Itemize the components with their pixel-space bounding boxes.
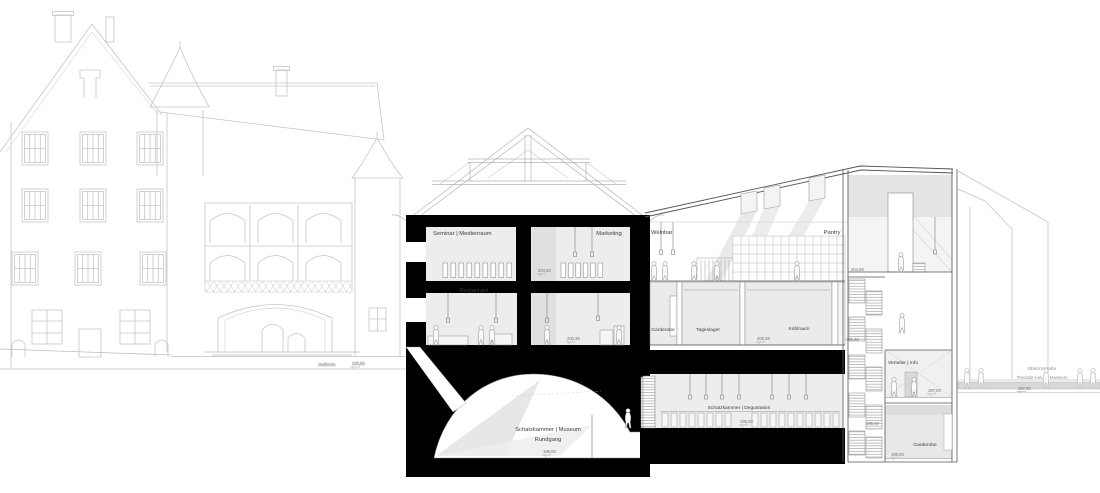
level-basement-garderobe: 195,00 [891,452,904,457]
level-street-verteiler: 197,00 [928,388,941,393]
arched-niches [12,340,168,357]
gf-slab-poche [640,350,845,374]
room-label-seminar: Seminar | Medienraum [433,231,492,237]
room-degustation: Schatzkammer | Degustation 195,00 [643,374,843,428]
room-label-garderobe-eg: Garderobe [651,327,675,333]
wine-rack-grid [733,236,845,281]
gf-rooms [650,282,845,345]
room-label-marketing: Marketing [596,231,621,237]
existing-building-elevation: Gelände 195,50 [0,12,406,370]
street-name-label: Obertorstraße [1028,366,1057,371]
level-terrain: 195,50 [352,361,365,366]
room-label-rundgang: Rundgang [535,437,562,443]
long-roof [148,83,384,140]
level-ground-right: 200,36 [757,336,770,341]
level-upper-middle: 204,50 [538,268,551,273]
stair-flights [849,279,882,458]
lattice-balustrade [205,281,352,292]
level-upper-tower: 204,50 [851,267,864,272]
room-label-verteiler: Verteiler | Info [888,360,918,366]
street-building-label: Theodor-Heuss-Museum [1017,375,1068,380]
level-basement-degustation: 195,00 [740,419,753,424]
shuttered-window [32,310,62,344]
room-label-garderobe-ug: Garderobe [913,442,937,448]
architectural-section-drawing: Gelände 195,50 Seminar | Medienraum Mark… [0,0,1100,493]
seminar-chairs [443,263,512,278]
room-label-restaurant: Restaurant [460,288,489,294]
terrain-label: Gelände [318,362,336,367]
room-label-schatzkammer-museum: Schatzkammer | Museum [515,427,581,433]
street-and-neighbour: Obertorstraße Theodor-Heuss-Museum 197,0… [958,171,1100,394]
level-ground-tower: 200,36 [846,337,859,342]
level-basement-tower: 195,00 [866,421,879,426]
level-ground-middle: 200,36 [567,336,580,341]
arcade-gallery [205,203,352,285]
room-label-kuehlraum: Kühlraum [789,326,810,332]
facade-edges [11,113,167,368]
room-label-weinbar: Weinbar [651,230,673,236]
level-basement-vault: 195,00 [543,449,556,454]
room-garderobe-ug: Garderobe 195,00 [886,405,953,461]
neighbour-building-outline [958,171,1100,380]
room-label-tageslager: Tageslager [696,327,720,333]
gable-roof-outline [0,24,162,152]
basement-poche-right [640,428,845,464]
room-label-pantry: Pantry [824,230,841,236]
chimney-small [106,17,114,42]
room-restaurant: Restaurant [426,288,630,345]
room-label-degustation: Schatzkammer | Degustation [708,405,771,411]
pendant-lamps [660,222,675,255]
section-canvas: Gelände 195,50 Seminar | Medienraum Mark… [0,0,1100,493]
turret-cone [150,41,209,176]
terrain-lines [0,349,406,369]
entry-portal [218,305,332,353]
level-street: 197,00 [1018,386,1031,391]
roof-dormer-chimney [80,70,100,98]
chimney [55,15,71,42]
stair-to-degustation [643,376,655,428]
timber-roof-truss [392,128,664,222]
room-seminar: Seminar | Medienraum [426,227,516,281]
window [22,132,48,165]
